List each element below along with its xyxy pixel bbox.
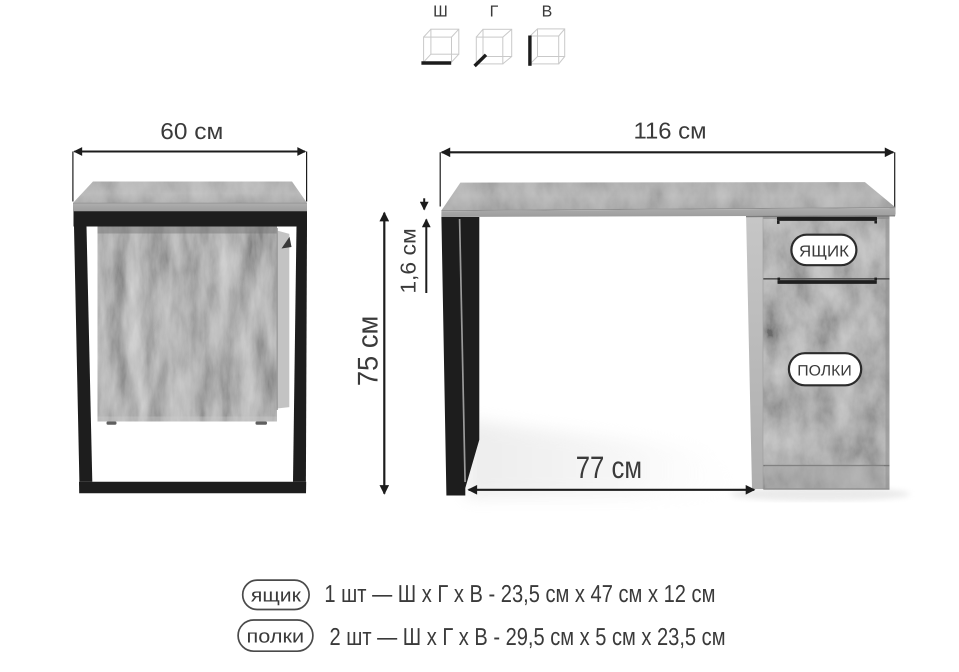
svg-text:1,6 см: 1,6 см (397, 228, 421, 293)
svg-text:116 см: 116 см (634, 118, 707, 144)
svg-text:ящик: ящик (251, 586, 302, 607)
svg-text:Г: Г (490, 4, 499, 21)
svg-text:полки: полки (247, 627, 305, 648)
svg-text:ПОЛКИ: ПОЛКИ (797, 362, 852, 379)
svg-text:75 см: 75 см (353, 316, 385, 387)
svg-text:ЯЩИК: ЯЩИК (799, 244, 850, 261)
svg-text:77 см: 77 см (576, 450, 642, 485)
svg-text:Ш: Ш (433, 4, 448, 21)
svg-text:1 шт — Ш х Г х В - 23,5 см х 4: 1 шт — Ш х Г х В - 23,5 см х 47 см х 12 … (324, 581, 715, 608)
svg-text:60 см: 60 см (160, 118, 223, 144)
svg-text:2 шт — Ш х Г х В - 29,5 см х: 2 шт — Ш х Г х В - 29,5 см х 5 см х 23,5… (330, 624, 726, 651)
svg-text:В: В (542, 4, 553, 21)
